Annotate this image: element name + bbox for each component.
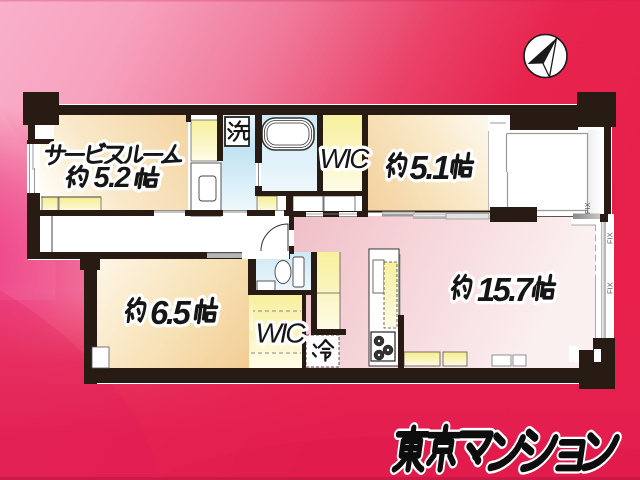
svg-text:WIC: WIC [256,318,307,349]
svg-text:WIC: WIC [320,143,371,174]
svg-text:15.7: 15.7 [477,271,534,308]
svg-text:5.2: 5.2 [94,162,131,194]
svg-text:FIX: FIX [583,202,592,214]
svg-text:6.5: 6.5 [150,294,192,331]
svg-text:FIX: FIX [606,282,615,294]
svg-text:5.1: 5.1 [410,149,450,186]
svg-text:FIX: FIX [606,232,615,244]
